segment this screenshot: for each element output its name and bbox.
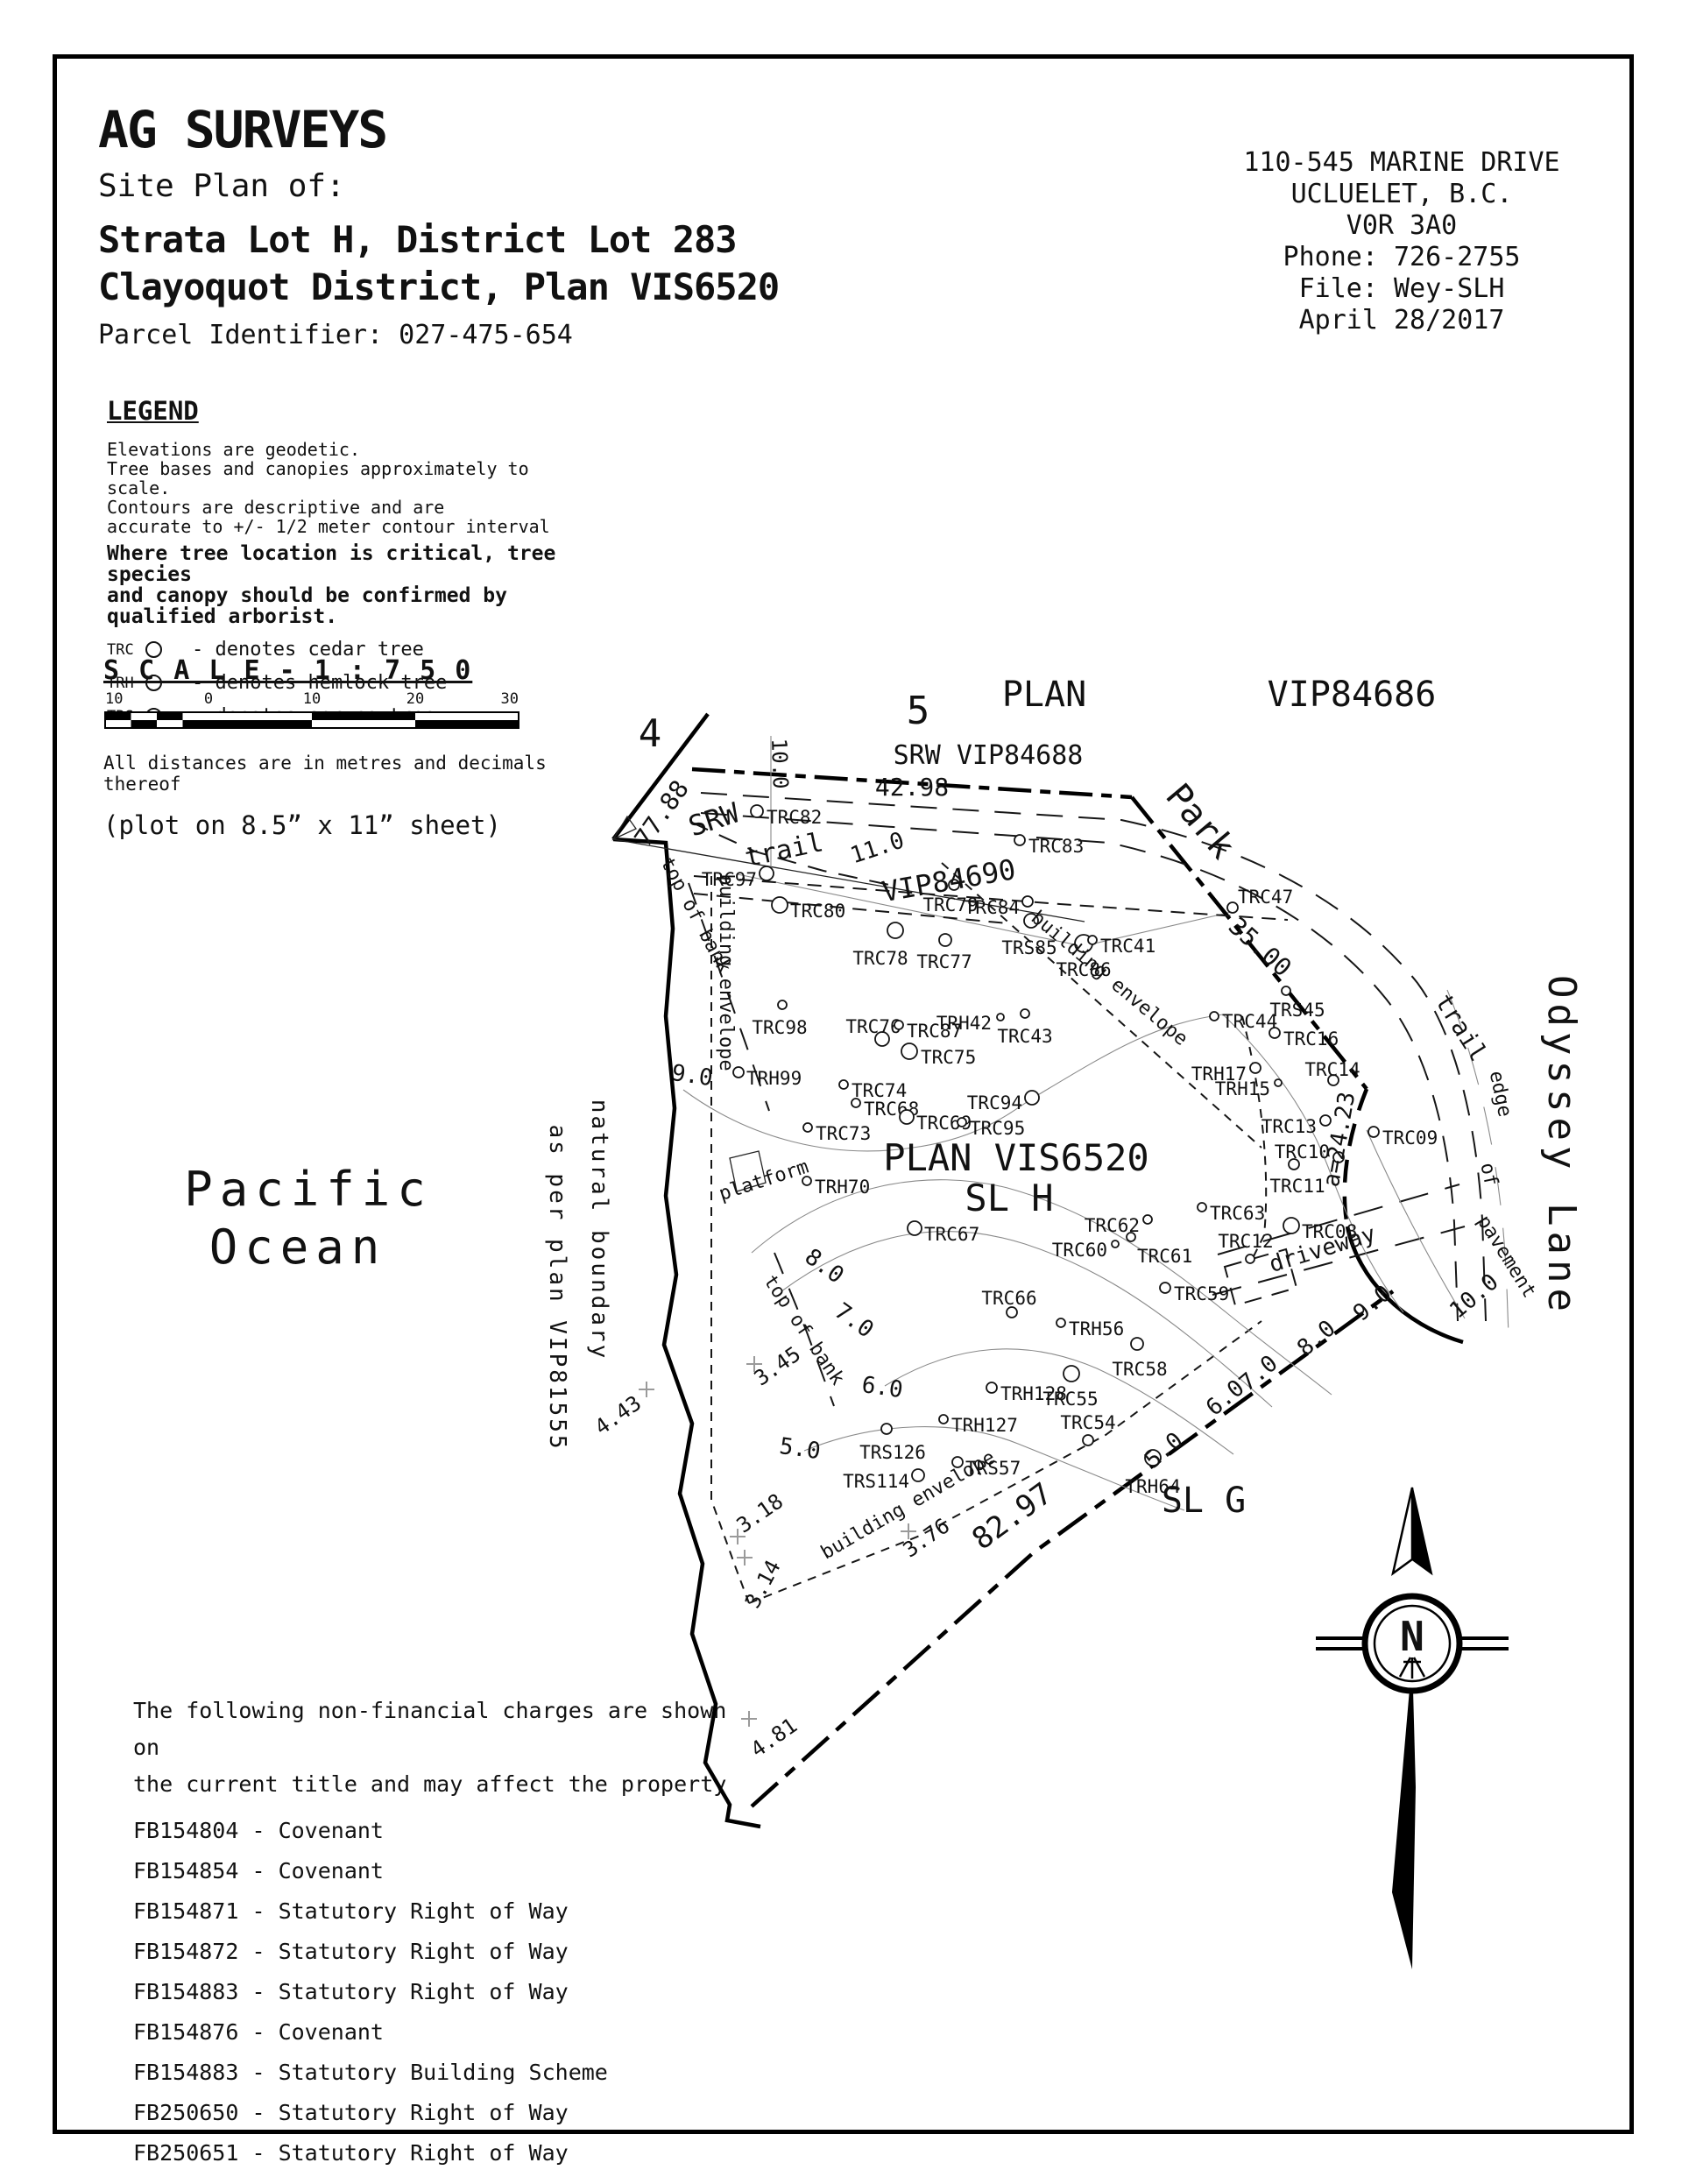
- tree-TRC66: TRC66: [981, 1288, 1036, 1318]
- plan-label-pacific: Pacific: [184, 1162, 433, 1217]
- tree-marker: [900, 1110, 914, 1124]
- tree-label: TRC59: [1174, 1283, 1229, 1304]
- tree-TRC54: TRC54: [1060, 1412, 1115, 1445]
- tree-TRH15: TRH15: [1215, 1078, 1282, 1099]
- tree-marker: [1250, 1063, 1261, 1073]
- tree-marker: [1088, 936, 1097, 944]
- tree-label: TRH127: [951, 1415, 1018, 1436]
- tree-TRC80: TRC80: [772, 897, 845, 922]
- plan-label-srw: SRW: [684, 795, 743, 843]
- plan-label-odyssey-lane: Odyssey Lane: [1539, 975, 1584, 1317]
- tree-marker: [1014, 835, 1025, 845]
- tree-marker: [901, 1043, 917, 1059]
- tree-label: TRC61: [1137, 1246, 1192, 1267]
- plan-label-trail: trail: [742, 827, 826, 873]
- tree-marker: [1127, 1233, 1135, 1241]
- tree-label: TRC60: [1052, 1240, 1107, 1261]
- tree-marker: [1275, 1079, 1282, 1086]
- tree-TRC59: TRC59: [1160, 1283, 1229, 1304]
- sheet: AG SURVEYS Site Plan of: Strata Lot H, D…: [0, 0, 1682, 2184]
- north-tail-blade: [1392, 1689, 1416, 1969]
- plan-label-park: Park: [1157, 776, 1242, 866]
- tree-label: TRC80: [790, 901, 845, 922]
- tree-label: TRC77: [916, 951, 972, 972]
- tree-marker: [1282, 986, 1290, 995]
- tree-TRC16: TRC16: [1269, 1028, 1339, 1050]
- tree-TRC82: TRC82: [751, 805, 822, 828]
- plan-label-8-0: 8.0: [1292, 1315, 1340, 1361]
- spot-elevation-3.14: 3.14: [737, 1550, 786, 1612]
- tree-label: TRC43: [997, 1026, 1052, 1047]
- tree-label: TRC47: [1238, 887, 1293, 908]
- tree-TRH42: TRH42: [936, 1013, 1004, 1034]
- spot-elevation-4.81: 4.81: [741, 1711, 802, 1762]
- spot-elevation-label: 3.14: [740, 1556, 786, 1612]
- plan-label-ocean: Ocean: [209, 1219, 387, 1275]
- tree-label: TRC55: [1042, 1389, 1098, 1410]
- tree-marker: [908, 1221, 922, 1235]
- plan-spot-elevations: 4.433.453.183.144.813.76: [590, 1341, 954, 1762]
- tree-TRS114: TRS114: [843, 1469, 924, 1492]
- tree-TRC47: TRC47: [1227, 887, 1293, 913]
- tree-marker: [912, 1469, 924, 1481]
- tree-label: TRC73: [816, 1123, 871, 1144]
- plan-label-6-0: 6.0: [860, 1372, 905, 1403]
- spot-elevation-3.18: 3.18: [730, 1488, 788, 1544]
- north-spear-left: [1393, 1488, 1412, 1573]
- tree-TRH70: TRH70: [802, 1177, 870, 1198]
- tree-TRC77: TRC77: [916, 934, 972, 972]
- tree-label: TRH15: [1215, 1078, 1270, 1099]
- tree-TRC14: TRC14: [1304, 1059, 1360, 1085]
- tree-marker: [1227, 902, 1238, 913]
- tree-TRC11: TRC11: [1269, 1159, 1325, 1197]
- plan-label-11-0: 11.0: [847, 827, 908, 869]
- tree-label: TRC94: [967, 1092, 1022, 1113]
- tree-label: TRC83: [1028, 836, 1084, 857]
- tree-marker: [894, 1021, 903, 1029]
- tree-marker: [1064, 1366, 1079, 1382]
- tree-label: TRC58: [1112, 1359, 1167, 1380]
- tree-label: TRC10: [1275, 1141, 1330, 1163]
- tree-TRC94: TRC94: [967, 1091, 1039, 1113]
- tree-label: TRC98: [752, 1017, 807, 1038]
- tree-marker: [778, 1000, 787, 1009]
- plan-label-sl-g: SL G: [1162, 1481, 1246, 1521]
- tree-TRC78: TRC78: [852, 922, 908, 969]
- plan-label-35-00: 35.00: [1223, 911, 1297, 982]
- tree-label: TRC82: [767, 807, 822, 828]
- tree-label: TRC84: [965, 897, 1020, 918]
- plan-label-5-0: 5.0: [1140, 1427, 1188, 1474]
- tree-TRH56: TRH56: [1057, 1318, 1124, 1339]
- tree-TRC12: TRC12: [1218, 1231, 1273, 1263]
- tree-TRC83: TRC83: [1014, 835, 1084, 857]
- spot-elevation-4.43: 4.43: [590, 1382, 654, 1439]
- plan-label-plan-vis6520: PLAN VIS6520: [883, 1136, 1148, 1179]
- tree-label: TRC66: [981, 1288, 1036, 1309]
- spot-elevation-label: 4.81: [746, 1713, 802, 1762]
- tree-marker: [939, 1415, 948, 1424]
- tree-TRC43: TRC43: [997, 1009, 1052, 1047]
- tree-marker: [958, 1118, 966, 1127]
- tree-marker: [852, 1099, 860, 1107]
- tree-TRC13: TRC13: [1261, 1115, 1331, 1137]
- tree-TRH127: TRH127: [939, 1415, 1018, 1436]
- tree-TRC09: TRC09: [1368, 1127, 1438, 1149]
- tree-marker: [1112, 1240, 1119, 1247]
- north-letter: N: [1400, 1613, 1424, 1660]
- tree-TRC67: TRC67: [908, 1221, 979, 1245]
- plan-label-trail: trail: [1430, 988, 1494, 1066]
- tree-label: TRH70: [815, 1177, 870, 1198]
- tree-marker: [803, 1123, 812, 1132]
- tree-marker: [751, 805, 763, 817]
- north-arrow-icon: N: [1316, 1488, 1509, 1969]
- tree-label: TRH99: [746, 1068, 802, 1089]
- tree-label: TRC63: [1210, 1203, 1265, 1224]
- tree-label: TRC41: [1100, 936, 1155, 957]
- tree-marker: [939, 934, 951, 946]
- plan-label-42-98: 42.98: [875, 773, 949, 802]
- tree-TRC60: TRC60: [1052, 1240, 1119, 1261]
- tree-TRC41: TRC41: [1088, 936, 1155, 957]
- tree-label: TRC54: [1060, 1412, 1115, 1433]
- spot-elevation-3.45: 3.45: [746, 1341, 805, 1390]
- tree-marker: [1057, 1318, 1065, 1327]
- plan-label-srw-vip84688: SRW VIP84688: [894, 740, 1084, 771]
- plan-label-vip84686: VIP84686: [1268, 675, 1437, 715]
- tree-marker: [1083, 1435, 1093, 1445]
- tree-label: TRC75: [921, 1047, 976, 1068]
- plan-label-natural-boundary: natural boundary: [586, 1099, 612, 1361]
- tree-label: TRH42: [936, 1013, 992, 1034]
- plan-label-a-24-23: a=24.23: [1318, 1090, 1361, 1189]
- plan-label-plan: PLAN: [1002, 675, 1086, 715]
- tree-marker: [997, 1014, 1004, 1021]
- tree-marker: [1210, 1012, 1219, 1021]
- plan-label-9-0: 9.0: [670, 1060, 715, 1092]
- tree-marker: [1025, 1091, 1039, 1105]
- tree-label: TRC13: [1261, 1116, 1317, 1137]
- plan-label-4: 4: [639, 711, 662, 756]
- tree-label: TRC16: [1283, 1028, 1339, 1050]
- tree-label: TRC09: [1382, 1127, 1438, 1149]
- north-spear-right: [1412, 1488, 1431, 1573]
- tree-TRC62: TRC62: [1085, 1215, 1152, 1236]
- tree-marker: [1143, 1215, 1152, 1224]
- spot-elevation-label: 3.18: [732, 1488, 788, 1537]
- tree-label: TRC67: [924, 1224, 979, 1245]
- tree-label: TRC11: [1269, 1176, 1325, 1197]
- tree-TRC44: TRC44: [1210, 1011, 1277, 1032]
- tree-marker: [1368, 1127, 1379, 1137]
- tree-TRC58: TRC58: [1112, 1338, 1167, 1380]
- tree-TRC75: TRC75: [901, 1043, 976, 1068]
- plan-label-5-0: 5.0: [778, 1433, 823, 1465]
- tree-TRS45: TRS45: [1269, 986, 1325, 1021]
- tree-label: TRS45: [1269, 1000, 1325, 1021]
- plan-label-10-0: 10.0: [1445, 1269, 1503, 1324]
- tree-marker: [1160, 1283, 1170, 1293]
- tree-marker: [839, 1080, 848, 1089]
- plan-label-7-0: 7.0: [830, 1298, 879, 1344]
- natural-boundary-line: [613, 839, 760, 1827]
- spot-elevation-label: 4.43: [590, 1390, 646, 1439]
- tree-marker: [986, 1382, 997, 1393]
- tree-marker: [1246, 1255, 1254, 1263]
- tree-marker: [1198, 1203, 1206, 1212]
- tree-marker: [1022, 896, 1033, 907]
- tree-TRC73: TRC73: [803, 1123, 871, 1144]
- tree-marker: [1289, 1159, 1299, 1170]
- tree-TRS126: TRS126: [859, 1424, 926, 1463]
- tree-TRC63: TRC63: [1198, 1203, 1265, 1224]
- north-tripod-glyph: [1400, 1657, 1424, 1679]
- tree-TRC61: TRC61: [1127, 1233, 1192, 1267]
- tree-marker: [887, 922, 903, 938]
- plan-label-as-per-plan-vip81555: as per plan VIP81555: [544, 1124, 570, 1451]
- plan-label-5: 5: [907, 689, 930, 733]
- tree-label: TRS126: [859, 1442, 926, 1463]
- plan-label-8-0: 8.0: [800, 1244, 849, 1290]
- spot-elevation-label: 3.45: [750, 1341, 805, 1390]
- tree-marker: [1021, 1009, 1029, 1018]
- plan-label-sl-h: SL H: [965, 1177, 1053, 1219]
- site-plan-drawing: TRC82TRC83TRC97TRC80TRC79TRC84TRS85TRC86…: [0, 0, 1682, 2184]
- tree-TRC98: TRC98: [752, 1000, 807, 1038]
- tree-label: TRC12: [1218, 1231, 1273, 1252]
- tree-label: TRC76: [845, 1016, 901, 1037]
- tree-marker: [772, 897, 788, 913]
- tree-TRC76: TRC76: [845, 1016, 901, 1046]
- plan-label-10-0: 10.0: [767, 738, 793, 789]
- tree-marker: [1283, 1218, 1299, 1233]
- tree-marker: [1131, 1338, 1143, 1350]
- tree-label: TRS114: [843, 1471, 909, 1492]
- tree-TRC84: TRC84: [965, 896, 1033, 918]
- tree-marker: [1269, 1028, 1280, 1038]
- tree-label: TRC14: [1304, 1059, 1360, 1080]
- tree-label: TRH56: [1069, 1318, 1124, 1339]
- tree-marker: [881, 1424, 892, 1434]
- tree-TRH99: TRH99: [733, 1067, 802, 1089]
- plan-label-edge: edge: [1485, 1069, 1516, 1119]
- tree-label: TRC78: [852, 948, 908, 969]
